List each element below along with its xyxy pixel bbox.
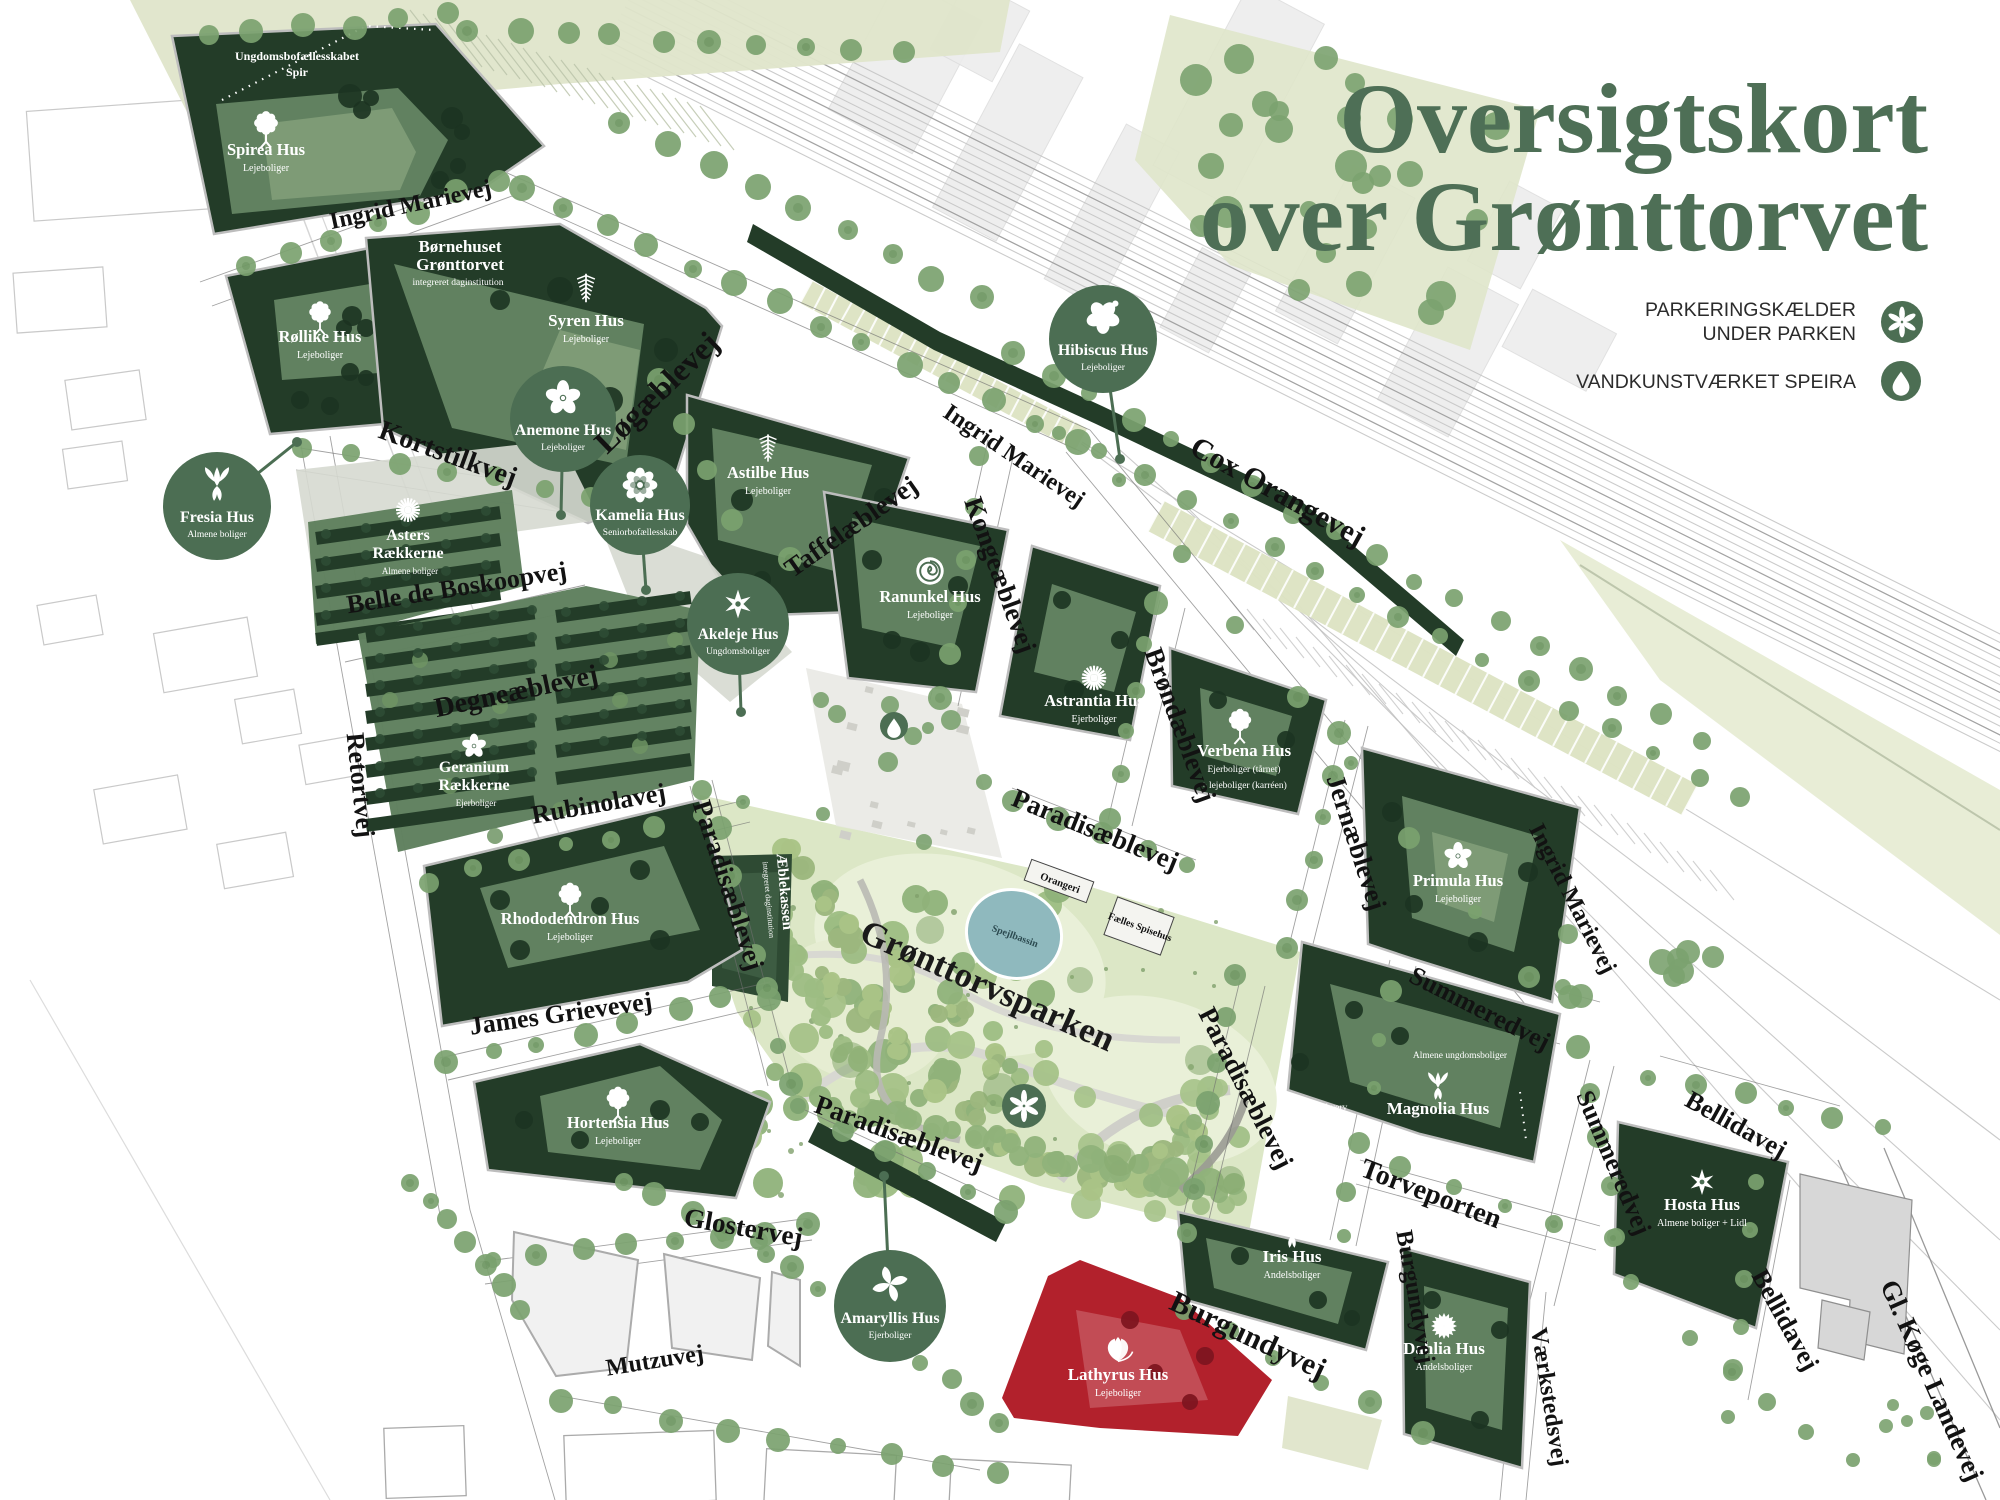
svg-text:Ejerboliger: Ejerboliger: [456, 798, 496, 808]
svg-text:over Grønttorvet: over Grønttorvet: [1200, 161, 1928, 272]
svg-text:Almene boliger + Lidl: Almene boliger + Lidl: [1657, 1218, 1747, 1229]
svg-text:Ejerboliger: Ejerboliger: [869, 1331, 913, 1341]
svg-text:Almene ungdomsboliger: Almene ungdomsboliger: [1413, 1051, 1508, 1061]
svg-text:integreret daginstitution: integreret daginstitution: [412, 278, 503, 288]
svg-text:Kamelia Hus: Kamelia Hus: [595, 507, 684, 524]
svg-text:Amaryllis Hus: Amaryllis Hus: [840, 1310, 939, 1327]
svg-text:Rhododendron Hus: Rhododendron Hus: [501, 909, 640, 928]
svg-text:Seniorbofællesskab: Seniorbofællesskab: [603, 527, 678, 538]
svg-text:UNDER PARKEN: UNDER PARKEN: [1703, 323, 1857, 345]
svg-text:Astrantia Hus: Astrantia Hus: [1044, 691, 1144, 710]
svg-text:Astilbe Hus: Astilbe Hus: [727, 463, 810, 482]
svg-text:Hibiscus Hus: Hibiscus Hus: [1058, 342, 1148, 359]
svg-text:Oversigtskort: Oversigtskort: [1339, 63, 1928, 174]
svg-text:Lejeboliger: Lejeboliger: [1435, 894, 1482, 905]
svg-text:Lejeboliger: Lejeboliger: [563, 334, 610, 345]
svg-text:Ungdomsboliger: Ungdomsboliger: [706, 647, 771, 657]
svg-text:VANDKUNSTVÆRKET SPEIRA: VANDKUNSTVÆRKET SPEIRA: [1576, 371, 1856, 393]
svg-text:Fresia Hus: Fresia Hus: [180, 509, 254, 526]
svg-text:Børnehuset: Børnehuset: [418, 237, 501, 256]
svg-text:Andelsboliger: Andelsboliger: [1264, 1270, 1321, 1281]
svg-text:Hortensia Hus: Hortensia Hus: [567, 1113, 670, 1132]
svg-text:PARKERINGSKÆLDER: PARKERINGSKÆLDER: [1645, 299, 1856, 321]
svg-text:Lejeboliger: Lejeboliger: [1081, 363, 1126, 373]
svg-text:Lejeboliger: Lejeboliger: [1095, 1388, 1142, 1399]
svg-text:Andelsboliger: Andelsboliger: [1416, 1362, 1473, 1373]
svg-text:Geranium: Geranium: [439, 759, 510, 776]
svg-text:Ungdomsboliger: Ungdomsboliger: [1426, 1151, 1491, 1161]
svg-text:Lejeboliger: Lejeboliger: [745, 486, 792, 497]
svg-text:Ejerboliger (tårnet): Ejerboliger (tårnet): [1207, 764, 1280, 775]
svg-text:Lathyrus Hus: Lathyrus Hus: [1068, 1365, 1169, 1384]
svg-text:Almene boliger: Almene boliger: [187, 530, 247, 540]
svg-text:Lejeboliger: Lejeboliger: [595, 1136, 642, 1147]
svg-text:Syren Hus: Syren Hus: [548, 311, 624, 330]
svg-text:Rækkerne: Rækkerne: [438, 777, 509, 794]
svg-text:Lejeboliger: Lejeboliger: [243, 163, 290, 174]
svg-text:Ranunkel Hus: Ranunkel Hus: [879, 587, 981, 606]
svg-text:Magnolia Hus: Magnolia Hus: [1387, 1099, 1490, 1118]
svg-text:Grønttorvet: Grønttorvet: [416, 255, 504, 274]
svg-text:Lejeboliger: Lejeboliger: [297, 350, 344, 361]
svg-text:Primula Hus: Primula Hus: [1413, 871, 1504, 890]
svg-text:Lejeboliger: Lejeboliger: [541, 443, 586, 453]
svg-text:Rækkerne: Rækkerne: [372, 545, 443, 562]
svg-text:Verbena Hus: Verbena Hus: [1197, 741, 1292, 760]
svg-text:Erhverv: Erhverv: [1317, 1103, 1348, 1113]
svg-text:Akeleje Hus: Akeleje Hus: [698, 626, 779, 643]
svg-text:Almene boliger: Almene boliger: [382, 566, 438, 576]
svg-text:Ungdomsbofællesskabet: Ungdomsbofællesskabet: [235, 49, 359, 63]
svg-text:Røllike Hus: Røllike Hus: [279, 327, 363, 346]
svg-text:Spir: Spir: [286, 65, 309, 79]
svg-text:Asters: Asters: [386, 527, 430, 544]
svg-text:Iris Hus: Iris Hus: [1262, 1247, 1321, 1266]
svg-text:Hosta Hus: Hosta Hus: [1664, 1195, 1740, 1214]
svg-text:Lejeboliger: Lejeboliger: [547, 932, 594, 943]
svg-text:Spirea Hus: Spirea Hus: [227, 140, 306, 159]
svg-text:Lejeboliger: Lejeboliger: [907, 610, 954, 621]
svg-text:Ejerboliger: Ejerboliger: [1072, 714, 1118, 725]
